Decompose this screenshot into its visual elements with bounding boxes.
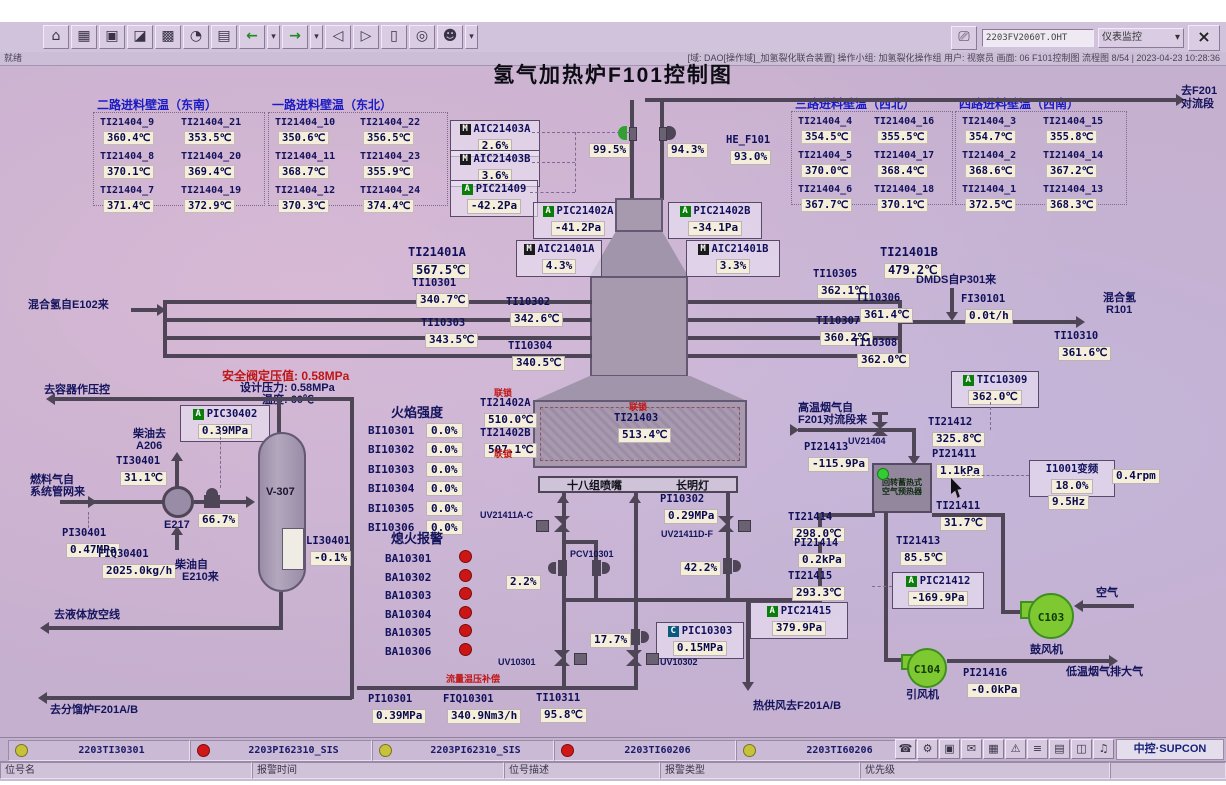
- alarm-priority-dot: [743, 744, 756, 757]
- flameout-row-BA10301[interactable]: BA10301: [385, 549, 472, 568]
- stack-base: [615, 198, 663, 232]
- wall-temp-group-3: 三路进料壁温（西北）TI21404_4354.5℃TI21404_16355.5…: [791, 111, 953, 205]
- damper-a-output[interactable]: 99.5%: [585, 139, 630, 158]
- valve-handle: [872, 412, 888, 415]
- flame-row-BI10303[interactable]: BI103030.0%: [368, 460, 463, 479]
- warning-icon[interactable]: ⚠: [1005, 739, 1026, 759]
- flameout-row-BA10304[interactable]: BA10304: [385, 605, 472, 624]
- wall-temp-tag: TI21404_3: [962, 116, 1043, 127]
- aic21401b-controller[interactable]: MAIC21401B3.3%: [686, 240, 780, 277]
- ti10310-value: 361.6℃: [1058, 346, 1111, 361]
- wall-temp-TI21404_15[interactable]: TI21404_15355.8℃: [1043, 116, 1124, 145]
- damper-stem: [629, 127, 637, 141]
- pi21416-indicator[interactable]: PI21416-0.0kPa: [963, 667, 1021, 698]
- flame-row-BI10304[interactable]: BI103040.0%: [368, 479, 463, 498]
- furnace-convection: [590, 276, 688, 377]
- wall-temp-value: 370.3℃: [278, 199, 329, 213]
- toolbar-icon-group: ⌂▦▣◪▩◔▤←▾→▾◁▷▯◎☻▾: [42, 25, 479, 49]
- alarm-tag: 2203TI60206: [762, 745, 917, 756]
- air-duct: [1001, 513, 1005, 613]
- wall-temp-TI21404_17[interactable]: TI21404_17368.4℃: [874, 150, 950, 179]
- v177-value: 17.7%: [590, 633, 631, 648]
- ti21402b-tag: TI21402B: [480, 427, 537, 439]
- wall-temp-value: 353.5℃: [184, 131, 235, 145]
- forward-icon[interactable]: →: [282, 25, 308, 49]
- valve-actuator: [574, 653, 587, 665]
- wall-temp-TI21404_6[interactable]: TI21404_6367.7℃: [798, 184, 874, 213]
- pilot-label: 长明灯: [676, 477, 709, 493]
- badge-m-icon: M: [460, 124, 471, 135]
- back-icon[interactable]: ←: [239, 25, 265, 49]
- wall-temp-TI21404_2[interactable]: TI21404_2368.6℃: [962, 150, 1043, 179]
- signal-line: [872, 586, 892, 587]
- aic21403a-tag: MAIC21403A: [455, 123, 535, 135]
- level-gauge: [282, 528, 304, 570]
- pipe: [562, 540, 598, 544]
- ti21415-tag: TI21415: [788, 570, 845, 582]
- field-label: 报警时间: [257, 765, 297, 776]
- alarm-cell-2203TI30301[interactable]: 2203TI30301: [8, 740, 190, 761]
- ti10303-value: 343.5℃: [425, 333, 478, 348]
- monitor-icon[interactable]: ▣: [939, 739, 960, 759]
- ti10308-value: 362.0℃: [857, 353, 910, 368]
- gear-icon[interactable]: ⚙: [917, 739, 938, 759]
- ti30401-tag: TI30401: [116, 455, 167, 467]
- ti10301-indicator[interactable]: TI10301340.7℃: [412, 277, 469, 308]
- supcon-logo: 中控·SUPCON: [1116, 739, 1224, 760]
- pic21402b-controller[interactable]: APIC21402B-34.1Pa: [668, 202, 762, 239]
- pi21411-tag: PI21411: [932, 448, 984, 460]
- wall-temp-value: 354.5℃: [801, 130, 852, 144]
- hot-air-label: 热供风去F201A/B: [753, 700, 841, 713]
- report-table-icon[interactable]: ▦: [71, 25, 97, 49]
- home-icon[interactable]: ⌂: [43, 25, 69, 49]
- valve-actuator: [738, 520, 751, 532]
- r101-label: R101: [1106, 304, 1132, 317]
- field-tagdesc: 位号描述: [504, 762, 660, 779]
- screen-name-input[interactable]: [982, 29, 1094, 47]
- calendar-icon[interactable]: ▦: [983, 739, 1004, 759]
- air-intake-duct: [1082, 604, 1134, 608]
- uv10301-label: UV10301: [498, 657, 536, 668]
- flameout-tag: BA10306: [385, 645, 445, 658]
- ti21415-value: 293.3℃: [792, 586, 845, 601]
- wall-temp-tag: TI21404_19: [181, 185, 262, 196]
- ti10304-tag: TI10304: [508, 340, 565, 352]
- wall-temp-tag: TI21404_22: [360, 117, 445, 128]
- flameout-row-BA10302[interactable]: BA10302: [385, 568, 472, 587]
- alarm-cell-2203PI62310_SIS[interactable]: 2203PI62310_SIS: [190, 740, 372, 761]
- scada-screen: ⌂▦▣◪▩◔▤←▾→▾◁▷▯◎☻▾ ⎚ 仪表监控 ▾ × 就绪 [域: DAO[…: [0, 0, 1226, 785]
- pi21413-value: -115.9Pa: [808, 457, 869, 472]
- pipe: [950, 288, 954, 314]
- mail-icon[interactable]: ✉: [961, 739, 982, 759]
- fiq30401-tag: FIQ30401: [98, 548, 176, 560]
- flue-pipe: [912, 430, 916, 458]
- ti21401a-indicator[interactable]: TI21401A567.5℃: [408, 246, 470, 279]
- pic21409-controller[interactable]: APIC21409-42.2Pa: [450, 180, 538, 217]
- c103-blower[interactable]: C103: [1020, 591, 1078, 641]
- close-button[interactable]: ×: [1188, 25, 1220, 51]
- ti21412-value: 325.8℃: [932, 432, 985, 447]
- pic10303-tag: CPIC10303: [661, 625, 739, 637]
- ti10305-tag: TI10305: [813, 268, 870, 280]
- damper-b-output[interactable]: 94.3%: [663, 139, 708, 158]
- wall-temp-TI21404_13[interactable]: TI21404_13368.3℃: [1043, 184, 1124, 213]
- wall-temp-TI21404_12[interactable]: TI21404_12370.3℃: [275, 185, 360, 214]
- wall-temp-value: 370.1℃: [103, 165, 154, 179]
- pipe: [279, 592, 283, 630]
- ti21402a-value: 510.0℃: [484, 413, 537, 428]
- wall-temp-TI21404_10[interactable]: TI21404_10350.6℃: [275, 117, 360, 146]
- pic21415-controller[interactable]: APIC21415379.9Pa: [750, 602, 848, 639]
- burners-label: 十八组喷嘴: [567, 477, 622, 493]
- wall-temp-value: 368.3℃: [1046, 198, 1097, 212]
- signal-line: [88, 512, 89, 528]
- fi30101-value: 0.0t/h: [965, 309, 1013, 324]
- e217-exchanger[interactable]: [162, 486, 194, 518]
- fi30101-indicator[interactable]: FI301010.0t/h: [961, 293, 1013, 324]
- wall-temp-tag: TI21404_15: [1043, 116, 1124, 127]
- field-label: 优先级: [865, 765, 895, 776]
- tic10309-controller[interactable]: ATIC10309362.0℃: [951, 371, 1039, 408]
- alarm-cell-2203PI62310_SIS[interactable]: 2203PI62310_SIS: [372, 740, 554, 761]
- wall-temp-TI21404_18[interactable]: TI21404_18370.1℃: [874, 184, 950, 213]
- ti10303-indicator[interactable]: TI10303343.5℃: [421, 317, 478, 348]
- pic30402-valve-icon[interactable]: [204, 495, 220, 508]
- wall-temp-TI21404_5[interactable]: TI21404_5370.0℃: [798, 150, 874, 179]
- wall-temp-tag: TI21404_21: [181, 117, 262, 128]
- v22-value: 2.2%: [506, 575, 541, 590]
- pilot-valve-icon[interactable]: [723, 558, 732, 574]
- he-f101-indicator[interactable]: HE_F10193.0%: [726, 134, 771, 165]
- wall-temp-group-4: 四路进料壁温（西南）TI21404_3354.7℃TI21404_15355.8…: [955, 111, 1127, 205]
- interlock-label: 联锁: [494, 449, 512, 460]
- badge-a-icon: A: [543, 206, 554, 217]
- v422-value: 42.2%: [680, 561, 721, 576]
- flow-arrow: [557, 494, 569, 503]
- alarm-dot-icon: [459, 643, 472, 656]
- wall-temp-value: 372.5℃: [965, 198, 1016, 212]
- page-title: 氢气加热炉F101控制图: [0, 63, 1226, 89]
- phone-icon[interactable]: ☎: [895, 739, 916, 759]
- ti10311-value: 95.8℃: [540, 708, 587, 723]
- li30401-tag: LI30401: [306, 535, 351, 547]
- trend-chart-icon[interactable]: ◪: [127, 25, 153, 49]
- badge-a-icon: A: [462, 184, 473, 195]
- wall-temp-tag: TI21404_6: [798, 184, 874, 195]
- wall-temp-tag: TI21404_17: [874, 150, 950, 161]
- ti10307-tag: TI10307: [816, 315, 873, 327]
- ti10302-indicator[interactable]: TI10302342.6℃: [506, 296, 563, 327]
- pi30401-tag: PI30401: [62, 527, 120, 539]
- he_f101-tag: HE_F101: [726, 134, 771, 146]
- pic30402-tag: APIC30402: [185, 408, 265, 420]
- overview-icon[interactable]: ▯: [381, 25, 407, 49]
- wall-temp-TI21404_20[interactable]: TI21404_20369.4℃: [181, 151, 262, 180]
- alarm-fields-row: 位号名 报警时间 位号描述 报警类型 优先级: [0, 761, 1226, 781]
- ti21413-tag: TI21413: [896, 535, 947, 547]
- stack-pipe: [630, 100, 634, 200]
- pic10303-controller[interactable]: CPIC103030.15MPa: [656, 622, 744, 659]
- li30401-indicator[interactable]: LI30401-0.1%: [306, 535, 351, 566]
- ti21403-indicator[interactable]: TI21403513.4℃: [614, 412, 671, 443]
- air-preheater[interactable]: 回转蓄热式 空气预热器: [872, 463, 932, 513]
- back-dropdown-icon[interactable]: ▾: [267, 25, 280, 49]
- uv10302-label: UV10302: [660, 657, 698, 668]
- ti21415-indicator[interactable]: TI21415293.3℃: [788, 570, 845, 601]
- ti21402a-tag: TI21402A: [480, 397, 537, 409]
- wall-temp-TI21404_24[interactable]: TI21404_24374.4℃: [360, 185, 445, 214]
- id-fan-label: 引风机: [906, 689, 939, 702]
- field-tagname: 位号名: [0, 762, 252, 779]
- ti21413-indicator[interactable]: TI2141385.5℃: [896, 535, 947, 566]
- pi10301-value: 0.39MPa: [372, 709, 426, 724]
- pilot-pipe: [726, 493, 730, 600]
- pcv10301-valve-icon[interactable]: [592, 560, 601, 576]
- flameout-row-BA10306[interactable]: BA10306: [385, 642, 472, 661]
- pic21402a-tag: APIC21402A: [538, 205, 618, 217]
- search-icon[interactable]: ◎: [409, 25, 435, 49]
- damper-valve-icon[interactable]: [618, 126, 627, 140]
- wall-temp-group-body: TI21404_3354.7℃TI21404_15355.8℃TI21404_2…: [956, 112, 1126, 213]
- pic10303-output[interactable]: 17.7%: [586, 629, 631, 648]
- pi21413-indicator[interactable]: PI21413-115.9Pa: [804, 441, 869, 472]
- badge-a-icon: A: [680, 206, 691, 217]
- wall-temp-tag: TI21404_12: [275, 185, 360, 196]
- pic21409-value: -42.2Pa: [467, 199, 521, 214]
- uv21411df-label: UV21411D-F: [661, 529, 713, 540]
- pi21416-tag: PI21416: [963, 667, 1021, 679]
- alarm-dot-icon: [459, 569, 472, 582]
- alarm-priority-dot: [561, 744, 574, 757]
- alarm-tag: 2203PI62310_SIS: [398, 745, 553, 756]
- user-icon[interactable]: ☻: [437, 25, 463, 49]
- flame-row-BI10305[interactable]: BI103050.0%: [368, 499, 463, 518]
- pi10302-value: 0.29MPa: [664, 509, 718, 524]
- signal-line: [575, 132, 576, 192]
- wall-temp-TI21404_4[interactable]: TI21404_4354.5℃: [798, 116, 874, 145]
- flame-tag: BI10304: [368, 482, 426, 495]
- flameout-row-BA10305[interactable]: BA10305: [385, 623, 472, 642]
- pic30402-output[interactable]: 66.7%: [194, 509, 239, 528]
- pic21412-controller[interactable]: APIC21412-169.9Pa: [892, 572, 984, 609]
- signal-line: [530, 192, 575, 193]
- pic21402b-tag: APIC21402B: [673, 205, 757, 217]
- wall-temp-tag: TI21404_7: [100, 185, 181, 196]
- c104-id-fan[interactable]: C104: [901, 646, 951, 690]
- alarm-priority-dot: [197, 744, 210, 757]
- vfd-frequency: 9.5Hz: [1044, 491, 1089, 510]
- flame-row-BI10302[interactable]: BI103020.0%: [368, 440, 463, 459]
- pi10301-indicator[interactable]: PI103010.39MPa: [368, 693, 426, 724]
- flame-tag: BI10305: [368, 502, 426, 515]
- aic21401a-controller[interactable]: MAIC21401A4.3%: [516, 240, 602, 277]
- wall-temp-tag: TI21404_18: [874, 184, 950, 195]
- page-next-icon[interactable]: ▷: [353, 25, 379, 49]
- ti21411-tag: TI21411: [936, 500, 987, 512]
- group-display-icon[interactable]: ▩: [155, 25, 181, 49]
- cold-flue-label: 低温烟气排大气: [1066, 666, 1143, 679]
- report-icon[interactable]: ▤: [1049, 739, 1070, 759]
- alarm-cell-2203TI60206[interactable]: 2203TI60206: [736, 740, 918, 761]
- a206-label: A206: [136, 440, 162, 453]
- pipe: [54, 397, 354, 401]
- wall-temp-TI21404_22[interactable]: TI21404_22356.5℃: [360, 117, 445, 146]
- wall-temp-group-body: TI21404_9360.4℃TI21404_21353.5℃TI21404_8…: [94, 113, 264, 214]
- wall-temp-tag: TI21404_4: [798, 116, 874, 127]
- page-prev-icon[interactable]: ◁: [325, 25, 351, 49]
- air-label: 空气: [1096, 587, 1118, 600]
- pic21409-tag: APIC21409: [455, 183, 533, 195]
- wall-temp-tag: TI21404_14: [1043, 150, 1124, 161]
- sound-icon[interactable]: ♫: [1093, 739, 1114, 759]
- pic21402a-value: -41.2Pa: [551, 221, 605, 236]
- alarm-tag: 2203TI60206: [580, 745, 735, 756]
- user-dropdown-icon[interactable]: ▾: [465, 25, 478, 49]
- ti10304-value: 340.5℃: [512, 356, 565, 371]
- wall-temp-TI21404_19[interactable]: TI21404_19372.9℃: [181, 185, 262, 214]
- alarm-cell-2203TI60206[interactable]: 2203TI60206: [554, 740, 736, 761]
- wall-temp-TI21404_9[interactable]: TI21404_9360.4℃: [100, 117, 181, 146]
- control-valve-icon[interactable]: [558, 560, 567, 576]
- wall-temp-group-body: TI21404_4354.5℃TI21404_16355.5℃TI21404_5…: [792, 112, 952, 213]
- alarm-priority-dot: [15, 744, 28, 757]
- alarm-dot-icon: [459, 606, 472, 619]
- ti21412-indicator[interactable]: TI21412325.8℃: [928, 416, 985, 447]
- flameout-alarm-list: BA10301BA10302BA10303BA10304BA10305BA103…: [385, 549, 472, 661]
- fiq10301-indicator[interactable]: FIQ10301340.9Nm3/h: [443, 693, 521, 724]
- wall-temp-tag: TI21404_8: [100, 151, 181, 162]
- forward-dropdown-icon[interactable]: ▾: [310, 25, 323, 49]
- pipe: [48, 626, 281, 630]
- history-icon[interactable]: ◔: [183, 25, 209, 49]
- run-status-light: [877, 468, 889, 480]
- pic10303-valve-icon[interactable]: [631, 629, 640, 645]
- ti10304-indicator[interactable]: TI10304340.5℃: [508, 340, 565, 371]
- flame-tag: BI10303: [368, 463, 426, 476]
- ti30401-indicator[interactable]: TI3040131.1℃: [116, 455, 167, 486]
- pilot-valve-output[interactable]: 42.2%: [676, 557, 721, 576]
- to-frac-label: 去分馏炉F201A/B: [50, 704, 138, 717]
- pic30402-controller[interactable]: APIC304020.39MPa: [180, 405, 270, 442]
- ti10311-indicator[interactable]: TI1031195.8℃: [536, 692, 587, 723]
- wall-temp-group-title: 二路进料壁温（东南）: [97, 96, 217, 113]
- pi21414-indicator[interactable]: PI214140.2kPa: [794, 537, 846, 568]
- wall-temp-TI21404_14[interactable]: TI21404_14367.2℃: [1043, 150, 1124, 179]
- aic21401a-tag: MAIC21401A: [521, 243, 597, 255]
- menu-icon[interactable]: ≡: [1027, 739, 1048, 759]
- ti10301-tag: TI10301: [412, 277, 469, 289]
- ti10308-indicator[interactable]: TI10308362.0℃: [853, 337, 910, 368]
- pic21412-tag: APIC21412: [897, 575, 979, 587]
- flame-intensity-list: BI103010.0%BI103020.0%BI103030.0%BI10304…: [368, 421, 463, 537]
- flue-duct: [947, 659, 1111, 663]
- li30401-value: -0.1%: [310, 551, 351, 566]
- flameout-title: 熄火报警: [391, 531, 443, 547]
- badge-a-icon: A: [193, 409, 204, 420]
- pipe: [60, 500, 163, 504]
- field-alarmtype: 报警类型: [660, 762, 860, 779]
- window-icon[interactable]: ▣: [99, 25, 125, 49]
- flame-row-BI10301[interactable]: BI103010.0%: [368, 421, 463, 440]
- wall-temp-TI21404_8[interactable]: TI21404_8370.1℃: [100, 151, 181, 180]
- wall-temp-TI21404_7[interactable]: TI21404_7371.4℃: [100, 185, 181, 214]
- wall-temp-value: 350.6℃: [278, 131, 329, 145]
- pic21402b-value: -34.1Pa: [688, 221, 742, 236]
- badge-m-icon: M: [524, 244, 535, 255]
- flow-arrow: [629, 494, 641, 503]
- wall-temp-value: 370.1℃: [877, 198, 928, 212]
- wall-temp-TI21404_1[interactable]: TI21404_1372.5℃: [962, 184, 1043, 213]
- ti10310-indicator[interactable]: TI10310361.6℃: [1054, 330, 1111, 361]
- ti10301-value: 340.7℃: [416, 293, 469, 308]
- ti21402a-indicator[interactable]: TI21402A510.0℃: [480, 397, 537, 428]
- pic21415-tag: APIC21415: [755, 605, 843, 617]
- wall-temp-value: 355.9℃: [363, 165, 414, 179]
- field-priority: 优先级: [860, 762, 1110, 779]
- ti10308-tag: TI10308: [853, 337, 910, 349]
- windows-icon[interactable]: ◫: [1071, 739, 1092, 759]
- pipe: [131, 308, 159, 312]
- wall-temp-tag: TI21404_23: [360, 151, 445, 162]
- flue-pipe: [798, 428, 916, 432]
- aic21401b-value: 3.3%: [716, 259, 751, 274]
- wall-temp-tag: TI21404_16: [874, 116, 950, 127]
- wall-temp-TI21404_16[interactable]: TI21404_16355.5℃: [874, 116, 950, 145]
- ti10306-tag: TI10306: [856, 292, 913, 304]
- badge-a-icon: A: [767, 606, 778, 617]
- pcv10301-label: PCV10301: [570, 549, 614, 560]
- wall-temp-TI21404_23[interactable]: TI21404_23355.9℃: [360, 151, 445, 180]
- fuel-valve-output[interactable]: 2.2%: [502, 571, 541, 590]
- alarm-dot-icon: [459, 624, 472, 637]
- printer-icon[interactable]: ⎚: [951, 26, 977, 50]
- wall-temp-value: 355.8℃: [1046, 130, 1097, 144]
- wall-temp-tag: TI21404_9: [100, 117, 181, 128]
- wall-temp-TI21404_11[interactable]: TI21404_11368.7℃: [275, 151, 360, 180]
- flameout-tag: BA10301: [385, 552, 445, 565]
- pic21402a-controller[interactable]: APIC21402A-41.2Pa: [533, 202, 623, 239]
- log-icon[interactable]: ▤: [211, 25, 237, 49]
- tic10309-value: 362.0℃: [968, 390, 1021, 405]
- fiq10301-tag: FIQ10301: [443, 693, 521, 705]
- air-duct: [932, 513, 1005, 517]
- wall-temp-value: 368.4℃: [877, 164, 928, 178]
- pi21414-tag: PI21414: [794, 537, 846, 549]
- field-alarmtime: 报警时间: [252, 762, 504, 779]
- to-flare-label: 去液体放空线: [54, 609, 120, 622]
- badge-m-icon: M: [698, 244, 709, 255]
- wall-temp-tag: TI21404_20: [181, 151, 262, 162]
- flameout-row-BA10303[interactable]: BA10303: [385, 586, 472, 605]
- v995-value: 99.5%: [589, 143, 630, 158]
- flow-arrow: [1076, 316, 1085, 328]
- blower-label: 鼓风机: [1030, 644, 1063, 657]
- fiq30401-indicator[interactable]: FIQ304012025.0kg/h: [98, 548, 176, 579]
- monitor-mode-select[interactable]: 仪表监控 ▾: [1098, 28, 1184, 48]
- uv21411ac-label: UV21411A-C: [480, 510, 533, 521]
- ti10302-tag: TI10302: [506, 296, 563, 308]
- wall-temp-value: 368.7℃: [278, 165, 329, 179]
- wall-temp-TI21404_3[interactable]: TI21404_3354.7℃: [962, 116, 1043, 145]
- vfd-speed: 0.4rpm: [1108, 465, 1160, 484]
- wall-temp-TI21404_21[interactable]: TI21404_21353.5℃: [181, 117, 262, 146]
- pi10302-indicator[interactable]: PI103020.29MPa: [660, 493, 718, 524]
- wall-temp-tag: TI21404_5: [798, 150, 874, 161]
- pipe: [277, 399, 281, 435]
- wall-temp-value: 355.5℃: [877, 130, 928, 144]
